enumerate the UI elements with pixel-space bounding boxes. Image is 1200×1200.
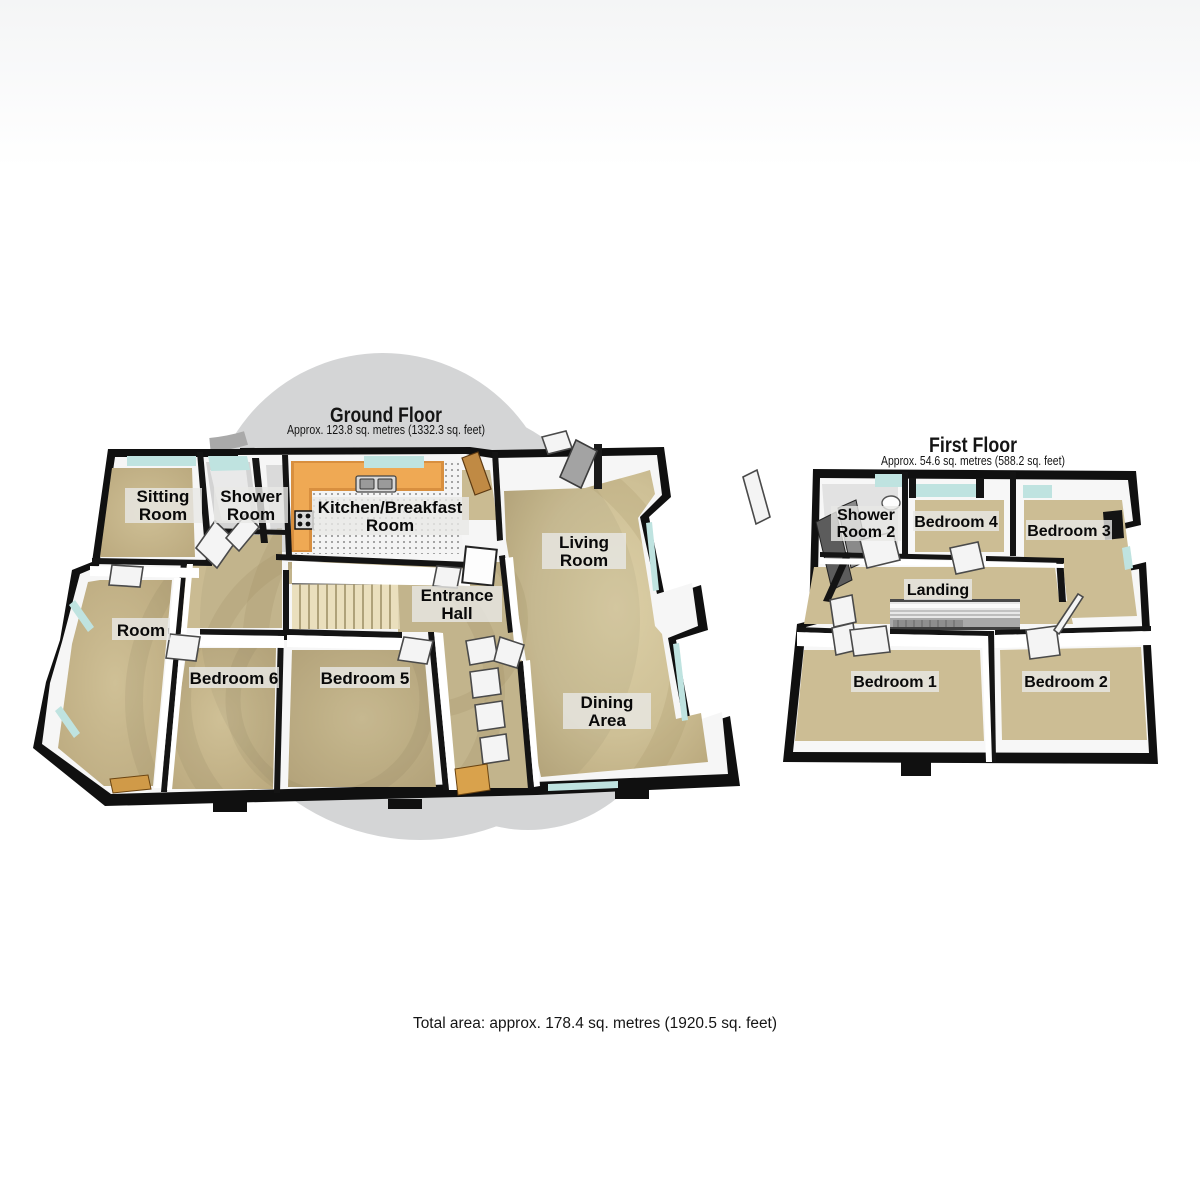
svg-text:Approx. 123.8 sq. metres (1332: Approx. 123.8 sq. metres (1332.3 sq. fee… xyxy=(287,422,485,437)
svg-text:Room: Room xyxy=(366,516,414,535)
svg-text:Bedroom 4: Bedroom 4 xyxy=(914,514,998,531)
svg-text:Bedroom 1: Bedroom 1 xyxy=(853,674,937,691)
svg-text:Sitting: Sitting xyxy=(137,487,190,506)
svg-text:Living: Living xyxy=(559,533,609,552)
svg-text:Approx. 54.6 sq. metres (588.2: Approx. 54.6 sq. metres (588.2 sq. feet) xyxy=(881,454,1065,468)
svg-text:Kitchen/Breakfast: Kitchen/Breakfast xyxy=(318,498,463,517)
svg-text:Bedroom 3: Bedroom 3 xyxy=(1027,523,1111,540)
svg-text:Room: Room xyxy=(227,505,275,524)
svg-text:Room: Room xyxy=(560,551,608,570)
svg-text:Bedroom 5: Bedroom 5 xyxy=(321,669,410,688)
svg-text:Entrance: Entrance xyxy=(421,586,494,605)
svg-text:Room: Room xyxy=(139,505,187,524)
svg-text:Landing: Landing xyxy=(907,582,969,599)
svg-text:Dining: Dining xyxy=(581,693,634,712)
svg-text:Shower: Shower xyxy=(220,487,282,506)
svg-text:Total area: approx. 178.4 sq.: Total area: approx. 178.4 sq. metres (19… xyxy=(413,1015,777,1032)
svg-text:Room: Room xyxy=(117,621,165,640)
svg-text:Bedroom 2: Bedroom 2 xyxy=(1024,674,1108,691)
svg-text:Shower: Shower xyxy=(837,507,895,524)
svg-text:Bedroom 6: Bedroom 6 xyxy=(190,669,279,688)
svg-text:Room 2: Room 2 xyxy=(837,524,896,541)
svg-text:Hall: Hall xyxy=(441,604,472,623)
svg-text:Area: Area xyxy=(588,711,626,730)
